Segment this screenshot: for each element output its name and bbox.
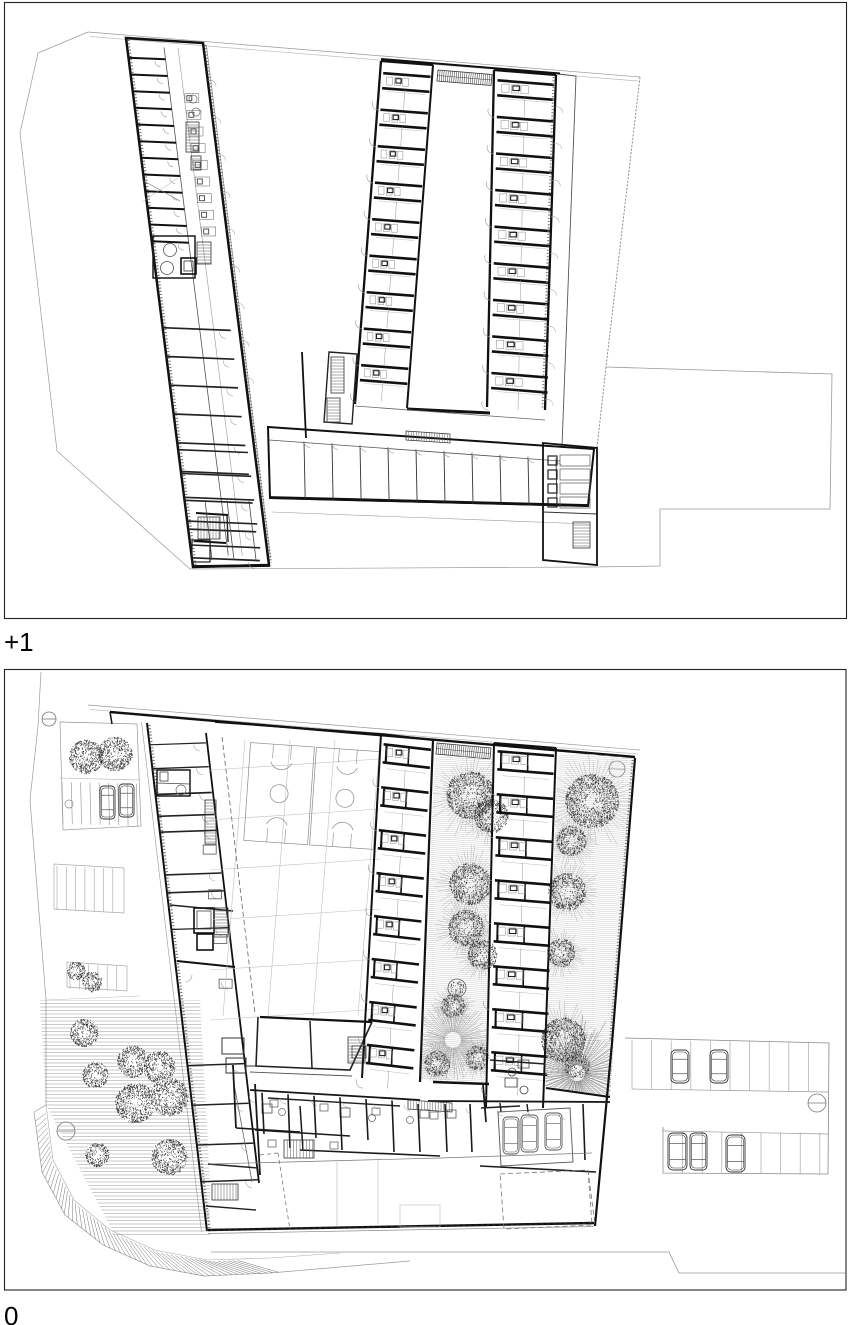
svg-text:+1: +1 — [4, 627, 34, 657]
svg-text:0: 0 — [4, 1301, 18, 1325]
